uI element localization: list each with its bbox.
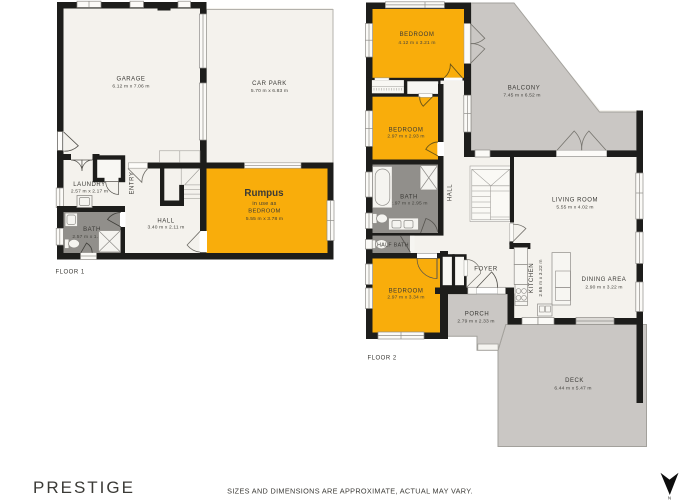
svg-text:FLOOR 2: FLOOR 2 — [368, 356, 397, 362]
svg-text:HALF BATH: HALF BATH — [377, 243, 409, 249]
svg-text:in use as: in use as — [252, 201, 276, 207]
svg-text:5.70 m x 6.83 m: 5.70 m x 6.83 m — [251, 88, 288, 94]
svg-text:6.44 m x 5.47 m: 6.44 m x 5.47 m — [554, 386, 591, 392]
svg-text:HALL: HALL — [448, 184, 454, 201]
svg-text:BALCONY: BALCONY — [508, 86, 541, 92]
svg-text:5.55 m x 3.78 m: 5.55 m x 3.78 m — [246, 216, 283, 222]
svg-text:N: N — [668, 496, 671, 500]
svg-text:CAR PARK: CAR PARK — [252, 81, 287, 87]
svg-text:Rumpus: Rumpus — [244, 188, 284, 199]
svg-text:GARAGE: GARAGE — [117, 77, 146, 83]
svg-text:6.12 m x 7.06 m: 6.12 m x 7.06 m — [112, 84, 149, 90]
svg-text:FLOOR 1: FLOOR 1 — [56, 270, 85, 276]
svg-text:2.97 m x 3.34 m: 2.97 m x 3.34 m — [387, 295, 424, 301]
svg-text:BATH: BATH — [400, 195, 418, 201]
svg-text:PRESTIGE: PRESTIGE — [33, 478, 135, 497]
svg-text:2.65 m x 3.22 m: 2.65 m x 3.22 m — [538, 259, 544, 296]
svg-text:DECK: DECK — [565, 378, 584, 384]
svg-text:LIVING ROOM: LIVING ROOM — [552, 198, 598, 204]
svg-text:3.40 m x 2.11 m: 3.40 m x 2.11 m — [148, 225, 185, 231]
svg-text:LAUNDRY: LAUNDRY — [73, 182, 105, 188]
svg-text:SIZES AND DIMENSIONS ARE APPRO: SIZES AND DIMENSIONS ARE APPROXIMATE, AC… — [227, 487, 473, 496]
svg-text:2.97 m x 2.93 m: 2.97 m x 2.93 m — [387, 134, 424, 140]
svg-text:BEDROOM: BEDROOM — [248, 209, 280, 215]
svg-text:2.57 m x 2.17 m: 2.57 m x 2.17 m — [71, 189, 108, 195]
svg-text:BEDROOM: BEDROOM — [389, 289, 424, 295]
svg-text:2.79 m x 2.33 m: 2.79 m x 2.33 m — [457, 319, 494, 325]
svg-text:FOYER: FOYER — [474, 267, 498, 273]
svg-text:BEDROOM: BEDROOM — [400, 32, 435, 38]
svg-text:7.45 m x 6.52 m: 7.45 m x 6.52 m — [503, 93, 540, 99]
svg-text:HALL: HALL — [157, 219, 174, 225]
svg-text:4.12 m x 3.21 m: 4.12 m x 3.21 m — [398, 40, 435, 46]
svg-text:5.55 m x 4.02 m: 5.55 m x 4.02 m — [556, 205, 593, 211]
svg-text:BEDROOM: BEDROOM — [389, 128, 424, 134]
svg-text:2.97 m x 2.95 m: 2.97 m x 2.95 m — [390, 201, 427, 207]
svg-text:PORCH: PORCH — [465, 312, 489, 318]
svg-text:DINING AREA: DINING AREA — [582, 277, 627, 283]
svg-text:2.90 m x 3.22 m: 2.90 m x 3.22 m — [585, 285, 622, 291]
svg-text:KITCHEN: KITCHEN — [529, 263, 535, 293]
